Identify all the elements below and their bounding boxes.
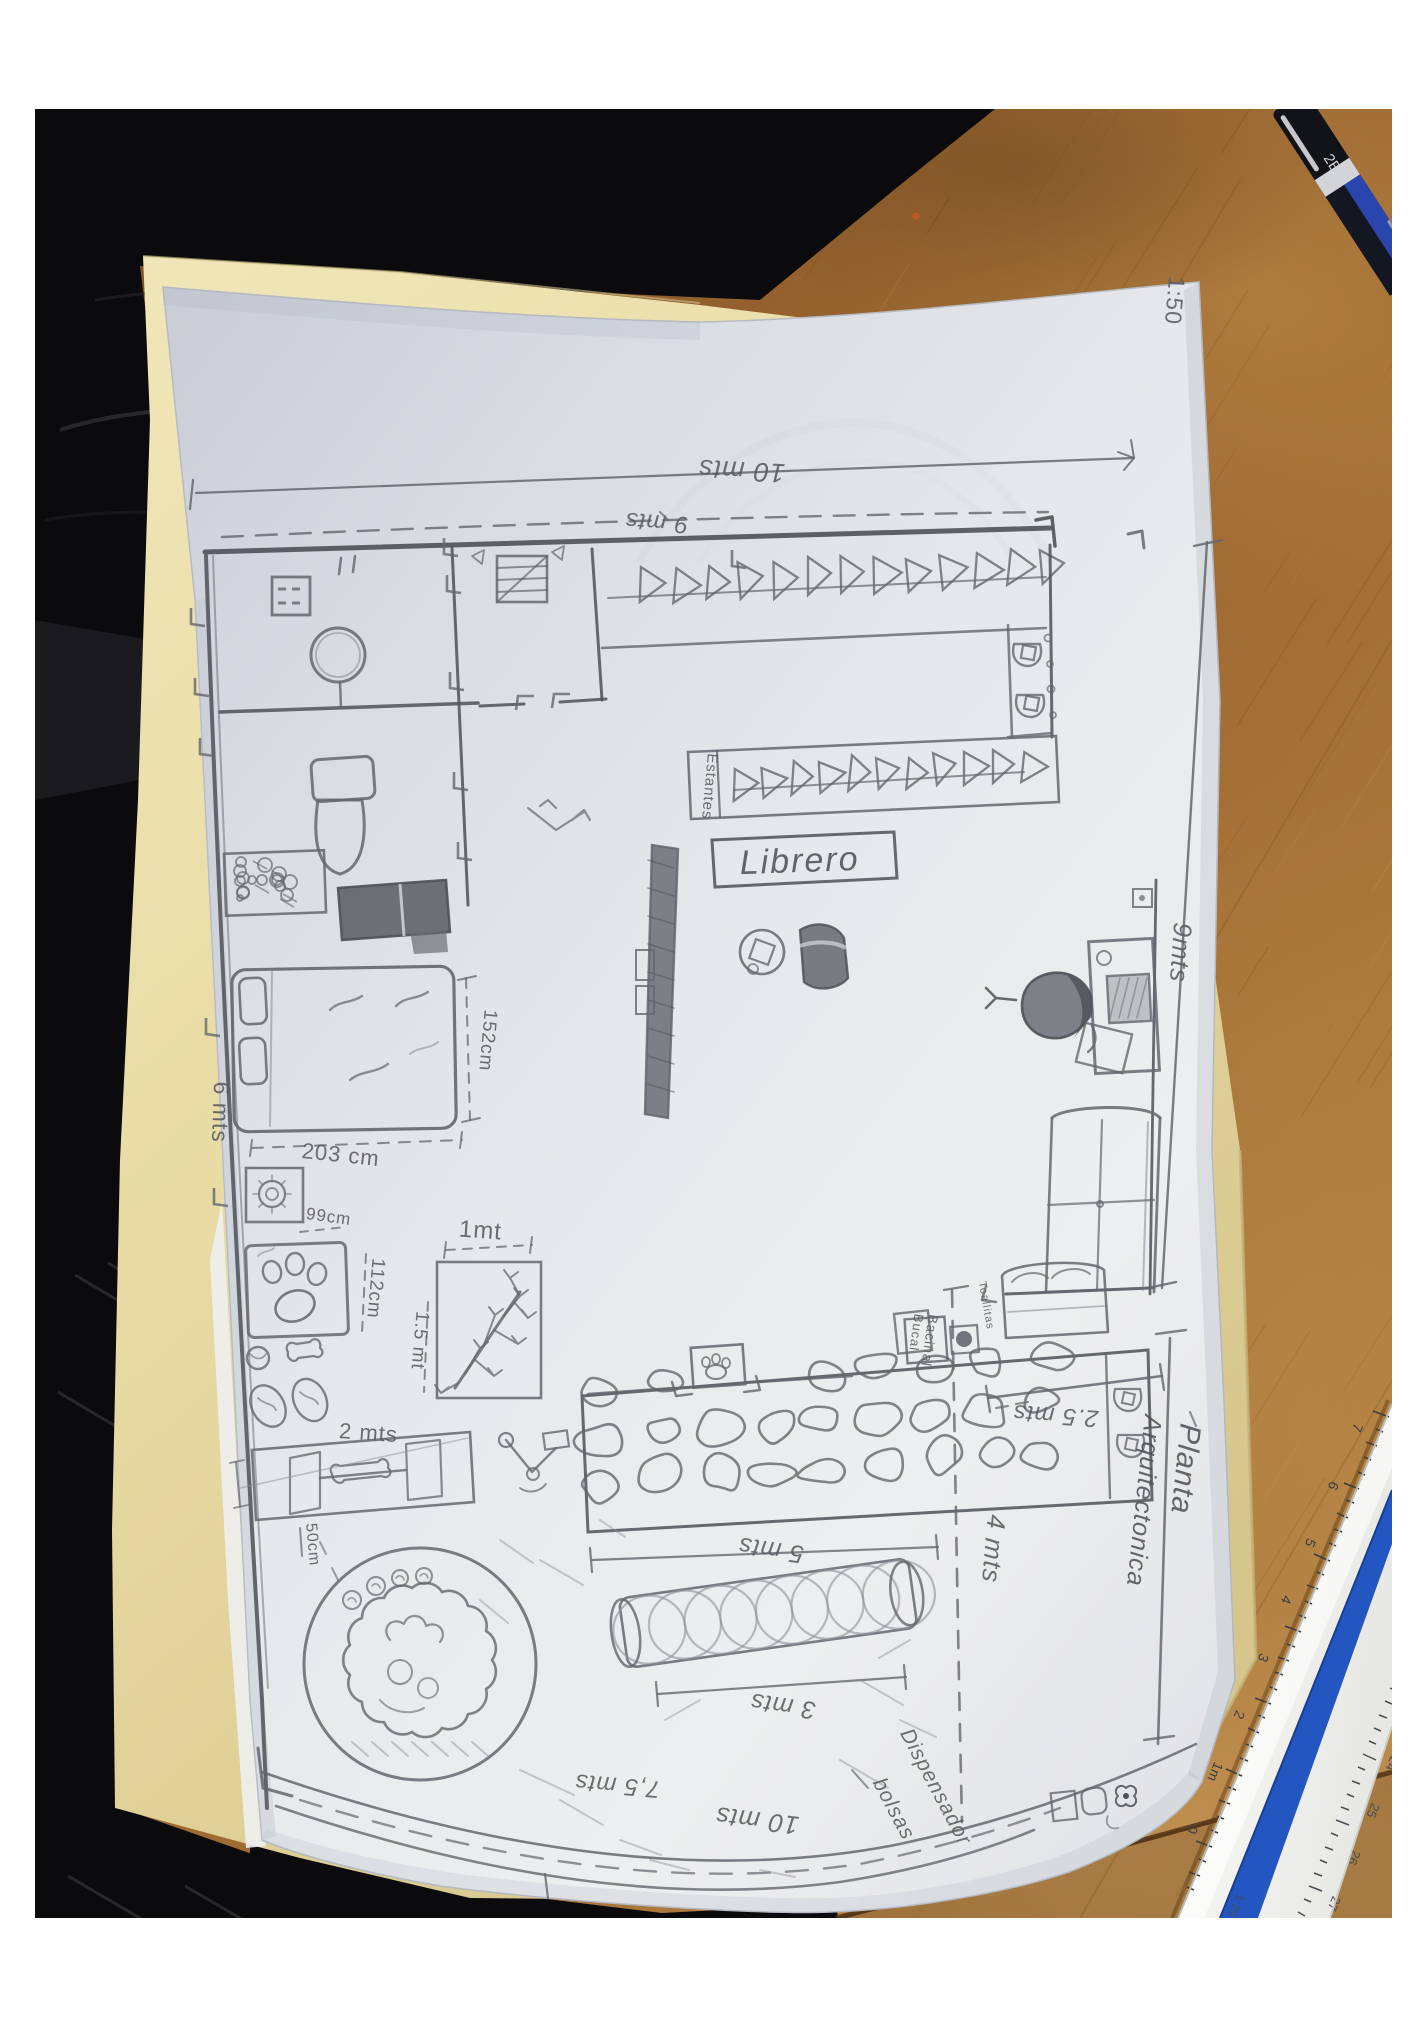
svg-text:1:50: 1:50 — [1160, 275, 1190, 326]
svg-text:9 mts: 9 mts — [624, 507, 689, 538]
svg-text:4 mts: 4 mts — [976, 1513, 1012, 1584]
svg-text:6 mts: 6 mts — [207, 1081, 235, 1143]
svg-text:1mt: 1mt — [458, 1216, 503, 1246]
svg-text:2 mts: 2 mts — [338, 1418, 398, 1447]
svg-text:9mts: 9mts — [1164, 921, 1198, 983]
svg-text:10 mts: 10 mts — [697, 454, 785, 489]
svg-text:Librero: Librero — [739, 840, 860, 882]
